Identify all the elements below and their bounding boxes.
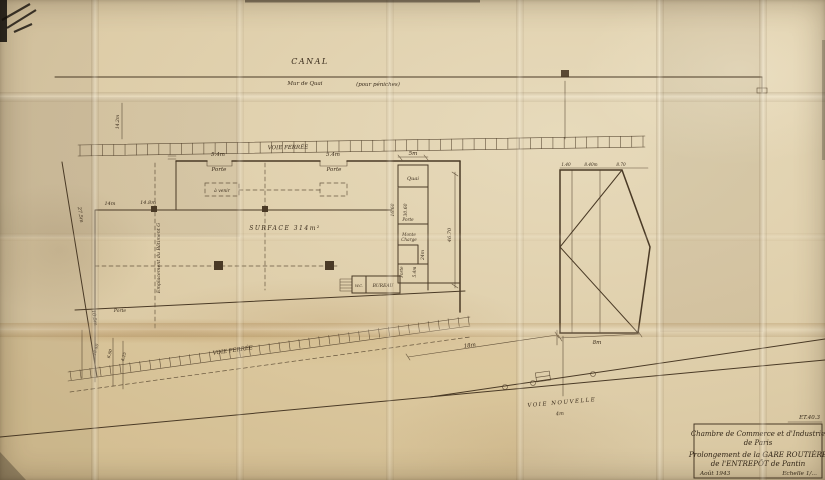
- scanned-plan-paper: CANAL Mur de Quai (pour péniches) VOIE F…: [0, 0, 825, 480]
- scan-artifacts: [0, 0, 825, 480]
- corner-pen-marks: [2, 4, 36, 32]
